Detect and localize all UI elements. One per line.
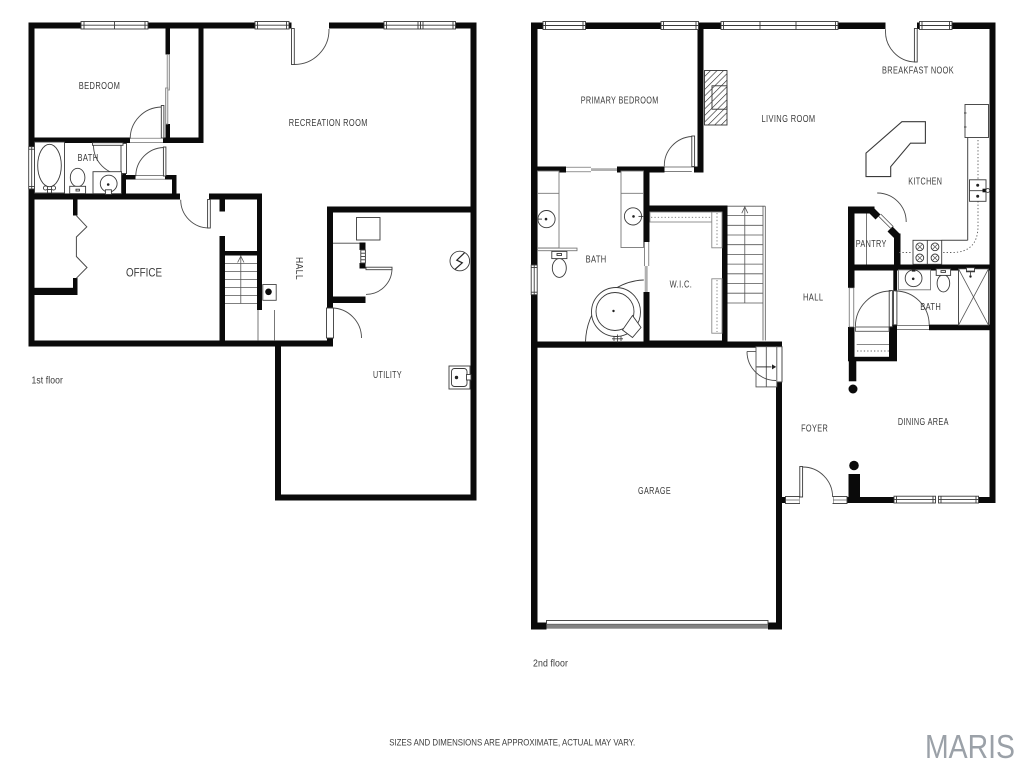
svg-text:KITCHEN: KITCHEN — [908, 176, 942, 187]
svg-text:PANTRY: PANTRY — [856, 239, 887, 250]
svg-text:HALL: HALL — [803, 292, 824, 303]
svg-text:BREAKFAST NOOK: BREAKFAST NOOK — [882, 66, 954, 77]
svg-text:BATH: BATH — [586, 255, 607, 266]
svg-text:2nd floor: 2nd floor — [533, 659, 568, 670]
svg-text:GARAGE: GARAGE — [638, 486, 671, 497]
svg-text:RECREATION ROOM: RECREATION ROOM — [289, 118, 368, 129]
svg-text:SIZES AND DIMENSIONS ARE APPRO: SIZES AND DIMENSIONS ARE APPROXIMATE, AC… — [389, 737, 635, 748]
svg-text:BATH: BATH — [920, 302, 941, 313]
svg-text:BEDROOM: BEDROOM — [79, 81, 121, 92]
svg-text:HALL: HALL — [293, 257, 304, 280]
svg-text:W.I.C.: W.I.C. — [670, 279, 693, 290]
svg-text:BATH: BATH — [78, 153, 99, 164]
svg-text:FOYER: FOYER — [801, 424, 828, 435]
svg-text:OFFICE: OFFICE — [126, 266, 162, 280]
svg-text:PRIMARY BEDROOM: PRIMARY BEDROOM — [581, 96, 659, 107]
svg-text:LIVING ROOM: LIVING ROOM — [762, 114, 816, 125]
svg-text:UTILITY: UTILITY — [373, 370, 402, 381]
svg-text:1st floor: 1st floor — [32, 376, 64, 387]
svg-text:MARIS: MARIS — [925, 729, 1015, 766]
svg-text:DINING AREA: DINING AREA — [898, 417, 949, 428]
